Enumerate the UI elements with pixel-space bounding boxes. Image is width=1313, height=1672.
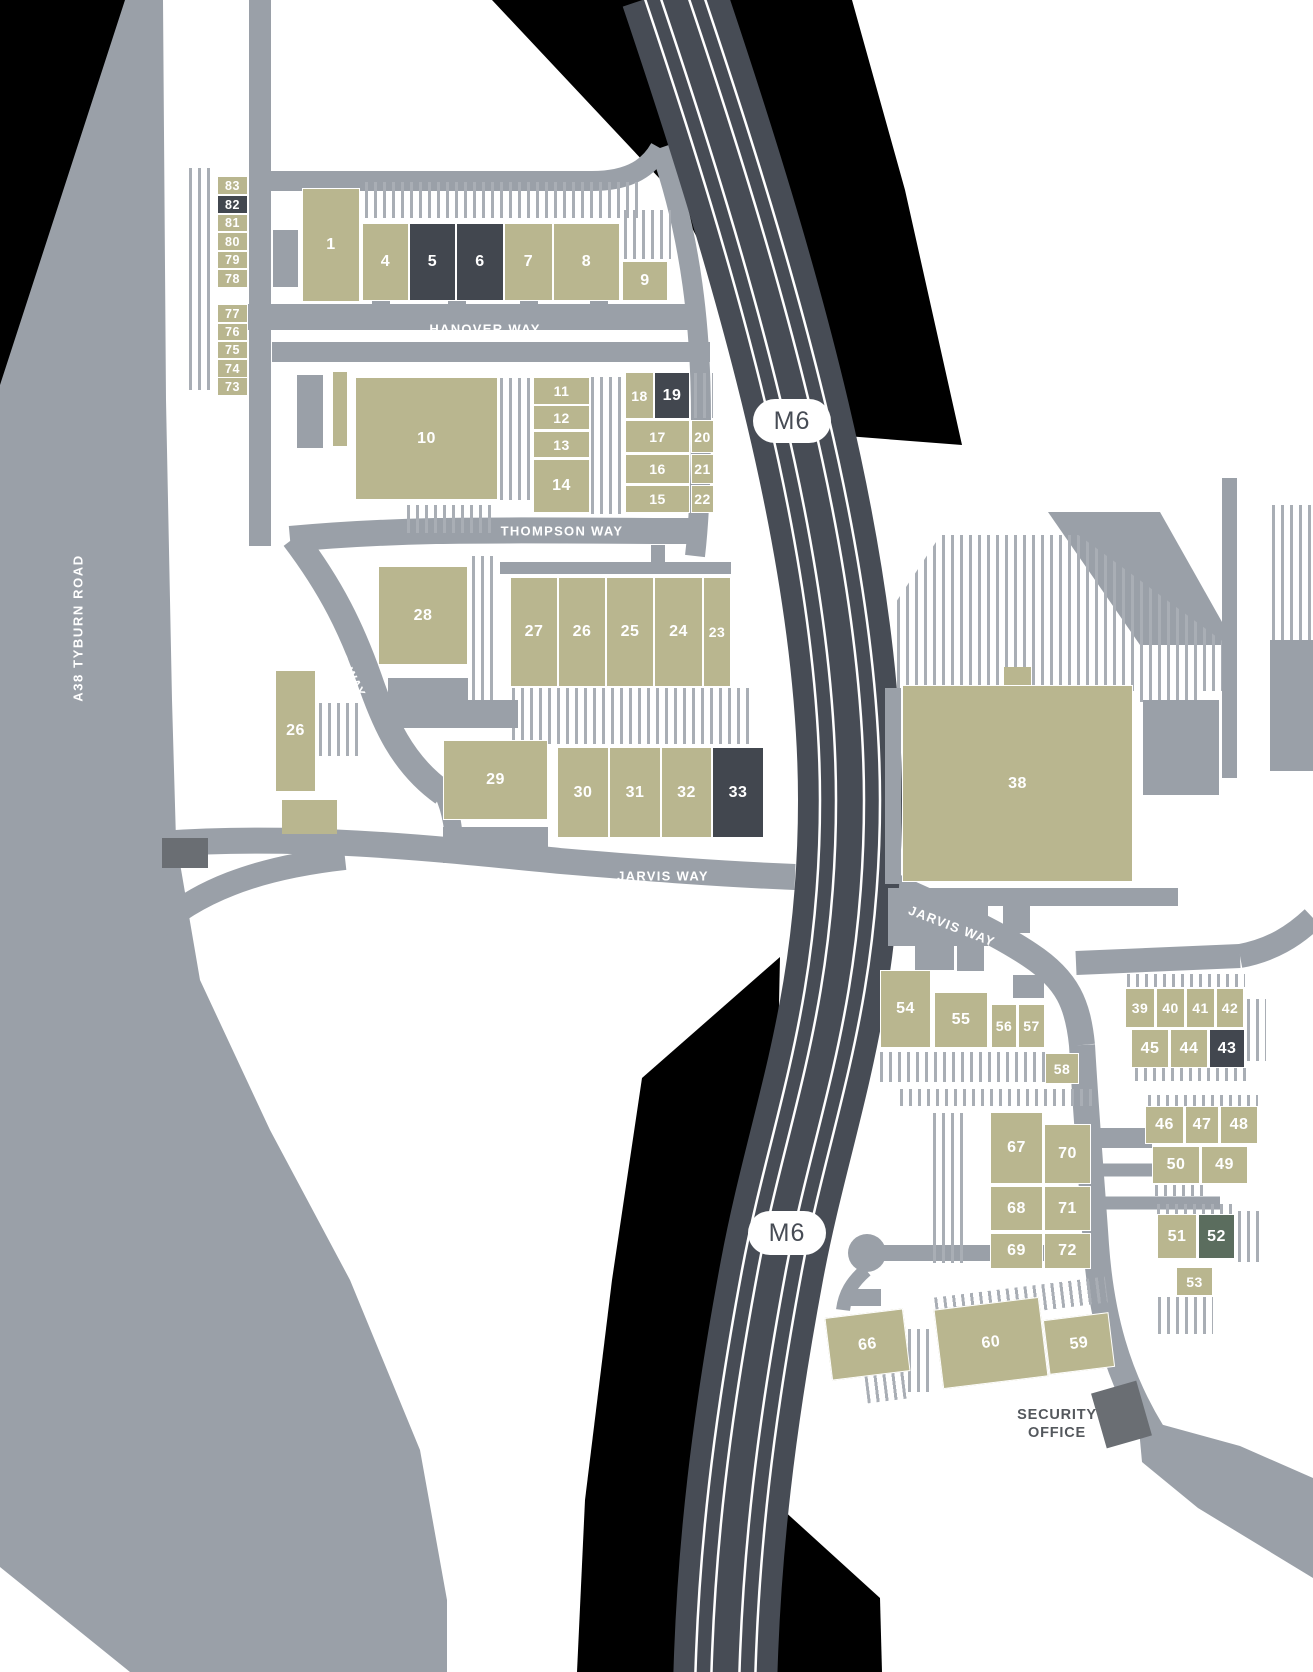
security-office-label-line2: OFFICE xyxy=(1028,1425,1086,1441)
site-map: 8382818079787776757473145678910111213141… xyxy=(0,0,1313,1672)
thompson-way-label: THOMPSON WAY xyxy=(501,524,624,539)
standard-way-label: STANDARD WAY xyxy=(304,590,369,699)
jarvis-way-west-label: JARVIS WAY xyxy=(617,869,709,884)
security-office-label-line1: SECURITY xyxy=(1017,1407,1097,1423)
jarvis-way-east-label: JARVIS WAY xyxy=(906,903,997,950)
hanover-way-label: HANOVER WAY xyxy=(429,322,540,337)
m6-badge-south: M6 xyxy=(748,1211,826,1255)
m6-badge-north: M6 xyxy=(753,399,831,443)
labels-layer: HANOVER WAY THOMPSON WAY STANDARD WAY JA… xyxy=(0,0,1313,1672)
security-office-label: SECURITY OFFICE xyxy=(1017,1406,1097,1442)
a38-tyburn-road-label: A38 TYBURN ROAD xyxy=(71,554,86,702)
